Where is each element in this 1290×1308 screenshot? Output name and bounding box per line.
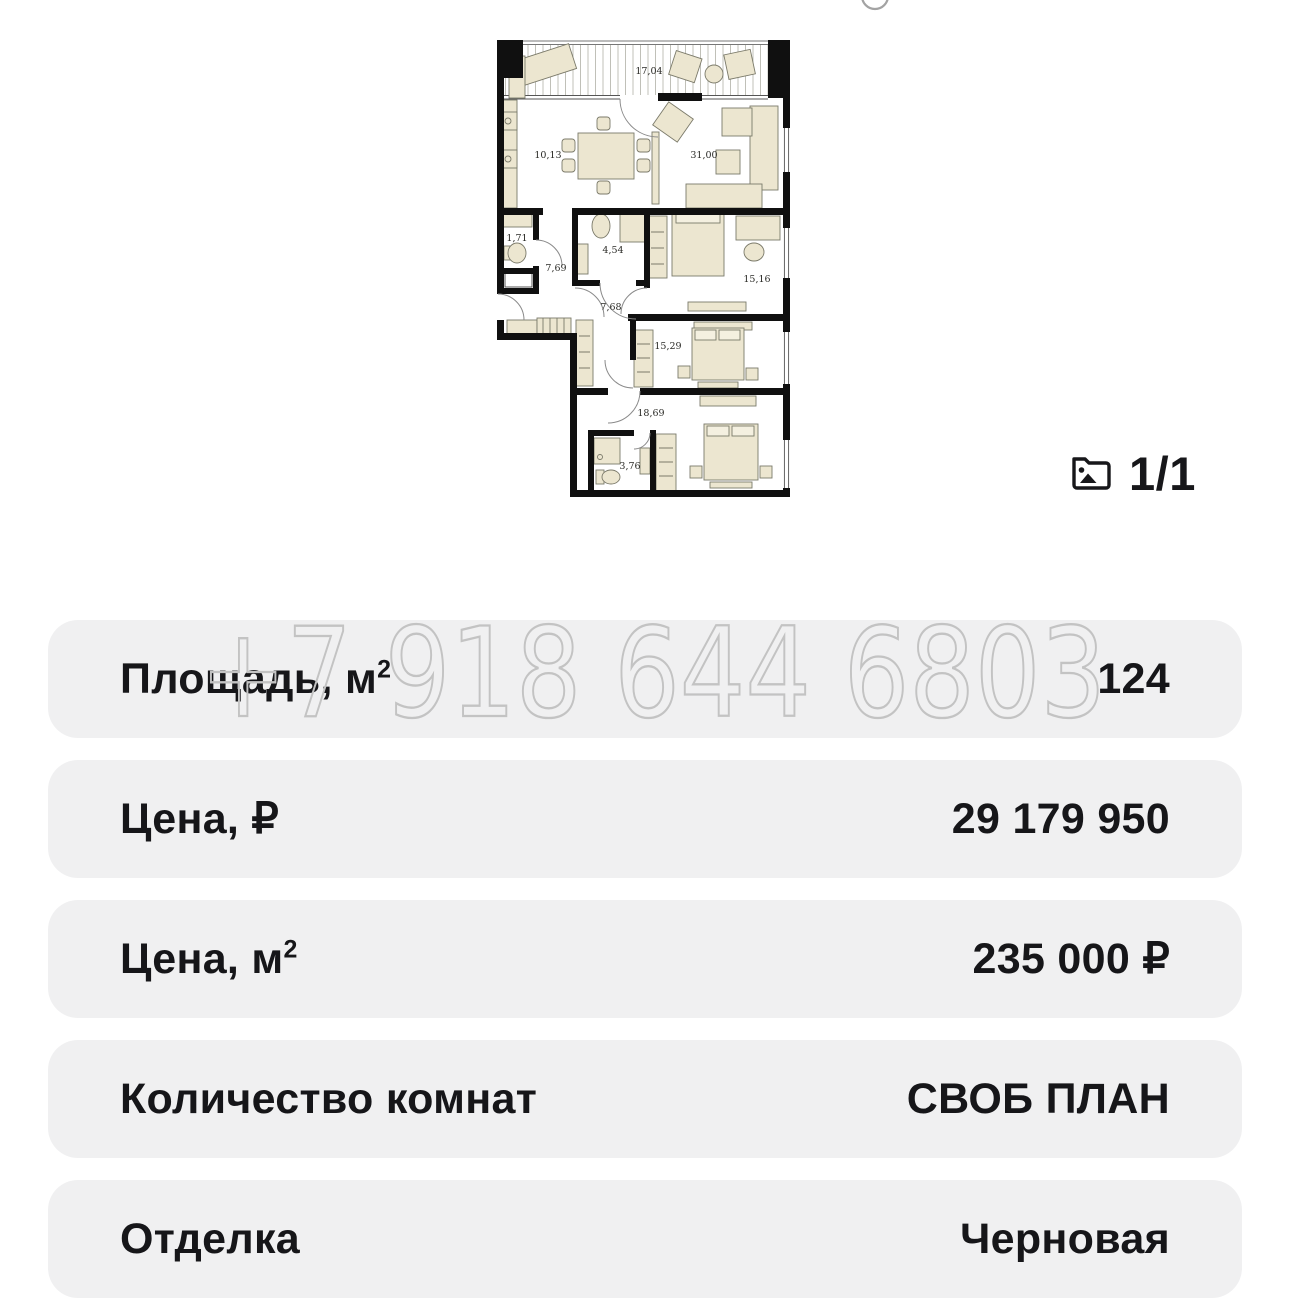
detail-row-price: Цена, ₽ 29 179 950	[48, 760, 1242, 878]
detail-row-area: Площадь, м2 124	[48, 620, 1242, 738]
row-label: Цена, м2	[120, 935, 298, 984]
room-area-label: 18,69	[637, 408, 664, 419]
gallery-counter: 1/1	[1068, 446, 1196, 501]
room-area-label: 17,04	[635, 66, 662, 77]
room-area-label: 15,29	[654, 341, 681, 352]
row-label: Цена, ₽	[120, 794, 279, 844]
detail-row-price-per-m2: Цена, м2 235 000 ₽	[48, 900, 1242, 1018]
room-area-label: 3,76	[619, 461, 640, 472]
row-value: СВОБ ПЛАН	[907, 1075, 1170, 1124]
room-area-label: 10,13	[534, 150, 561, 161]
room-area-label: 31,00	[690, 150, 717, 161]
row-label: Площадь, м2	[120, 655, 391, 704]
room-area-label: 7,69	[545, 263, 566, 274]
room-area-label: 7,68	[600, 302, 621, 313]
detail-row-finishing: Отделка Черновая	[48, 1180, 1242, 1298]
row-value: 124	[1097, 655, 1170, 704]
photo-icon	[1068, 453, 1114, 495]
room-area-label: 1,71	[506, 233, 527, 244]
furniture	[500, 44, 780, 491]
detail-row-rooms: Количество комнат СВОБ ПЛАН	[48, 1040, 1242, 1158]
room-area-label: 4,54	[602, 245, 623, 256]
row-value: 29 179 950	[952, 795, 1170, 844]
row-label: Отделка	[120, 1215, 300, 1264]
gallery-counter-text: 1/1	[1129, 446, 1196, 501]
row-value: 235 000 ₽	[973, 934, 1170, 984]
row-value: Черновая	[960, 1215, 1170, 1264]
watermark-fragment	[852, 0, 898, 18]
floorplan-image[interactable]: 17,04 10,13 31,00 1,71 7,69 4,54 7,68 15…	[450, 18, 840, 510]
room-area-label: 15,16	[743, 274, 770, 285]
row-label: Количество комнат	[120, 1075, 537, 1124]
